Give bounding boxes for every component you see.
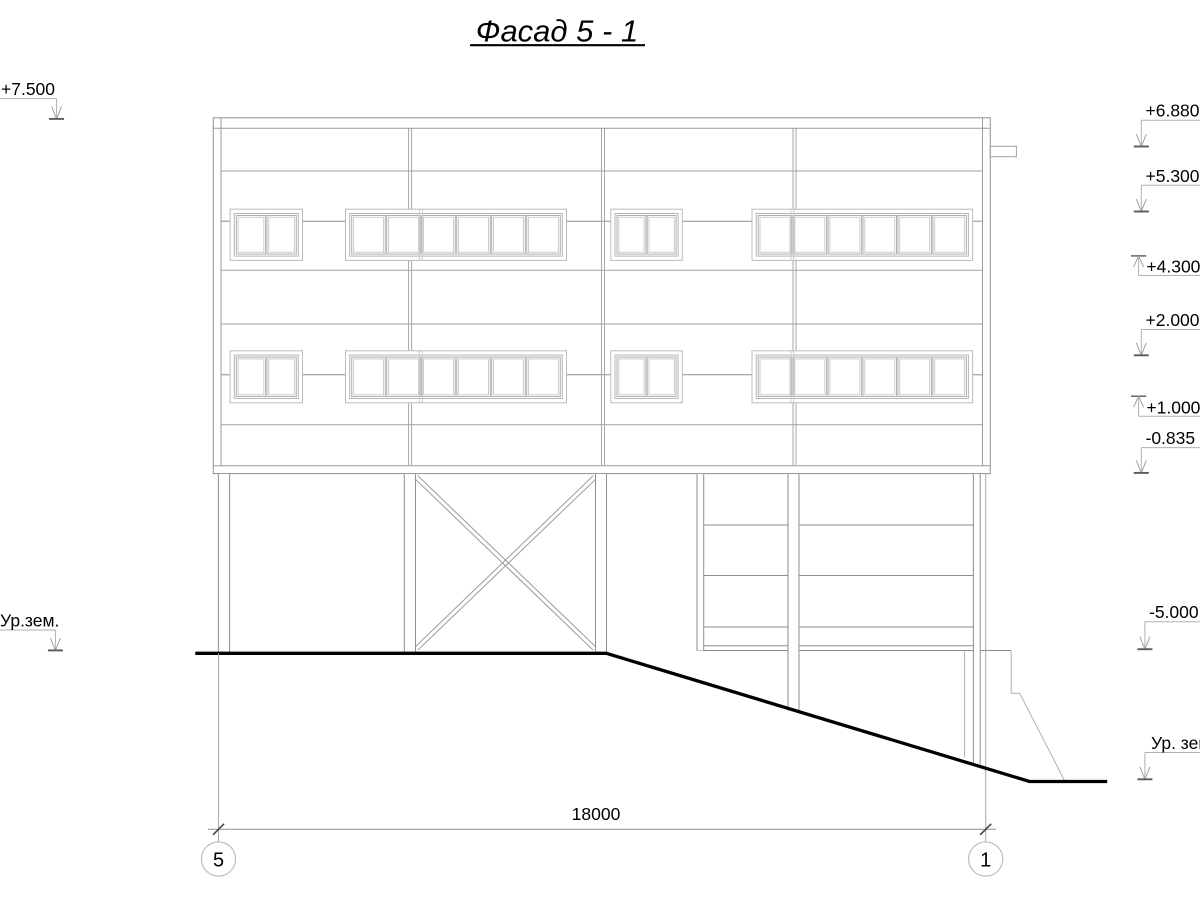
svg-text:-5.000: -5.000: [1149, 602, 1199, 622]
svg-text:Фасад 5 - 1: Фасад 5 - 1: [476, 14, 638, 49]
svg-text:+5.300: +5.300: [1146, 166, 1200, 186]
svg-text:1: 1: [980, 849, 991, 871]
svg-text:+1.000: +1.000: [1146, 397, 1200, 417]
svg-text:Ур.зем.: Ур.зем.: [0, 611, 59, 631]
svg-text:-0.835: -0.835: [1146, 428, 1196, 448]
svg-text:Ур. зем.: Ур. зем.: [1151, 733, 1200, 753]
svg-text:+4.300: +4.300: [1146, 257, 1200, 277]
svg-text:+7.500: +7.500: [1, 79, 55, 99]
svg-text:5: 5: [213, 849, 224, 871]
svg-text:18000: 18000: [572, 804, 621, 824]
svg-text:+2.000: +2.000: [1146, 310, 1200, 330]
svg-text:+6.880: +6.880: [1146, 101, 1200, 121]
